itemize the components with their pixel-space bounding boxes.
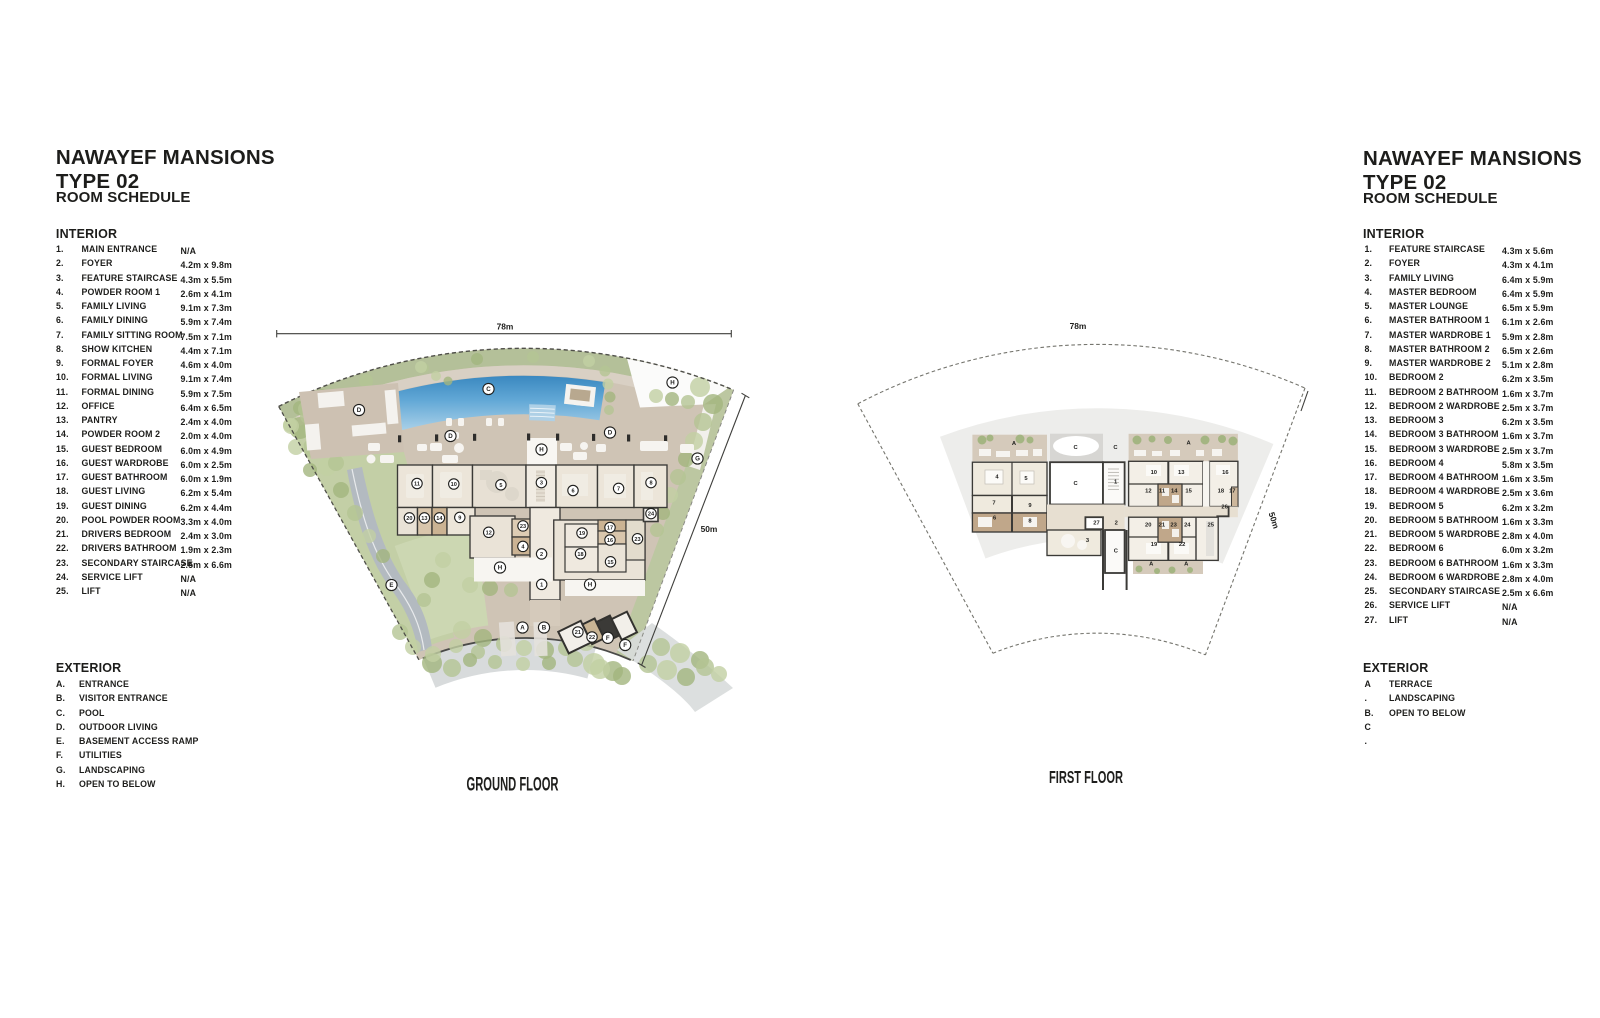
svg-text:18: 18	[577, 552, 583, 558]
svg-text:13: 13	[1178, 470, 1185, 476]
svg-text:15: 15	[1185, 489, 1192, 495]
svg-text:E: E	[389, 582, 393, 589]
svg-text:14: 14	[436, 516, 443, 522]
svg-text:19: 19	[579, 531, 585, 537]
svg-text:16: 16	[1222, 470, 1229, 476]
svg-text:10: 10	[451, 482, 457, 488]
svg-text:A: A	[520, 625, 525, 632]
svg-text:24: 24	[1184, 523, 1191, 529]
svg-text:22: 22	[589, 635, 595, 641]
svg-text:50m: 50m	[701, 524, 718, 534]
svg-text:13: 13	[421, 516, 427, 522]
svg-text:20: 20	[406, 516, 412, 522]
svg-text:23: 23	[1170, 523, 1177, 529]
svg-text:7: 7	[617, 486, 620, 492]
svg-text:24: 24	[648, 512, 655, 518]
svg-text:F: F	[623, 642, 627, 649]
svg-text:C: C	[486, 386, 491, 393]
svg-text:78m: 78m	[497, 322, 514, 332]
svg-text:F: F	[606, 635, 610, 642]
svg-text:H: H	[498, 565, 503, 572]
svg-text:B: B	[542, 625, 547, 632]
svg-text:27: 27	[1093, 521, 1099, 527]
svg-text:50m: 50m	[1267, 511, 1282, 530]
svg-text:25: 25	[1207, 523, 1214, 529]
svg-text:78m: 78m	[1070, 321, 1087, 331]
svg-text:2: 2	[540, 552, 543, 558]
svg-text:H: H	[670, 380, 675, 387]
svg-text:15: 15	[607, 560, 613, 566]
svg-text:22: 22	[1179, 542, 1185, 548]
svg-text:17: 17	[1229, 489, 1235, 495]
svg-text:GROUND FLOOR: GROUND FLOOR	[467, 774, 559, 796]
svg-text:18: 18	[1218, 489, 1225, 495]
svg-text:16: 16	[607, 538, 613, 544]
svg-text:1: 1	[540, 582, 543, 588]
svg-text:7: 7	[992, 500, 995, 506]
svg-text:5: 5	[499, 483, 502, 489]
svg-text:21: 21	[575, 630, 581, 636]
svg-text:9: 9	[458, 515, 461, 521]
svg-text:H: H	[588, 582, 593, 589]
svg-text:8: 8	[649, 481, 652, 487]
svg-text:20: 20	[1145, 523, 1151, 529]
svg-text:23: 23	[520, 524, 526, 530]
svg-text:D: D	[357, 407, 362, 414]
svg-text:H: H	[539, 447, 544, 454]
svg-text:3: 3	[540, 481, 543, 487]
svg-text:19: 19	[1151, 542, 1158, 548]
svg-text:12: 12	[1145, 489, 1151, 495]
svg-text:D: D	[608, 430, 613, 437]
svg-text:10: 10	[1151, 470, 1157, 476]
svg-text:2: 2	[1115, 520, 1118, 526]
svg-text:14: 14	[1171, 489, 1178, 495]
svg-text:23: 23	[634, 537, 640, 543]
svg-text:FIRST FLOOR: FIRST FLOOR	[1049, 767, 1123, 787]
svg-text:26: 26	[1221, 504, 1228, 510]
svg-text:G: G	[695, 456, 700, 463]
svg-text:11: 11	[1159, 488, 1166, 494]
svg-text:D: D	[448, 433, 453, 440]
svg-text:17: 17	[607, 526, 613, 532]
svg-text:12: 12	[486, 530, 492, 536]
svg-text:6: 6	[571, 489, 574, 495]
svg-text:11: 11	[414, 482, 420, 488]
svg-text:21: 21	[1159, 523, 1166, 529]
